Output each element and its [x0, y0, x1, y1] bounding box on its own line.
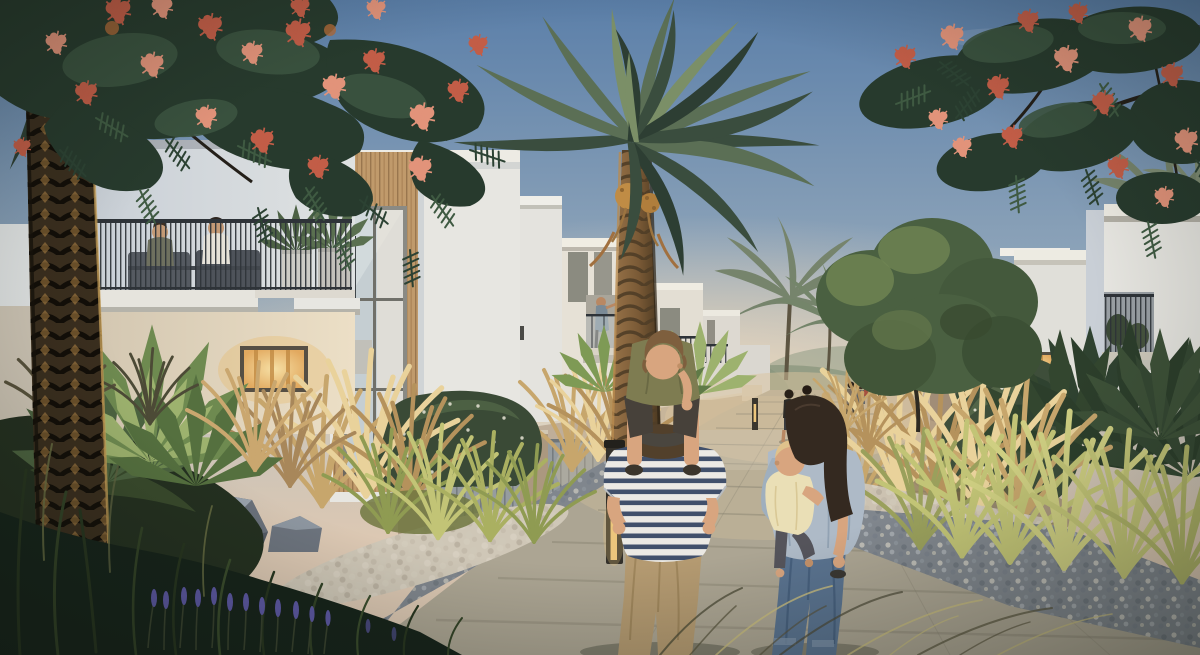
scene-svg: Dusk architectural rendering of a modern…: [0, 0, 1200, 655]
render-canvas: Dusk architectural rendering of a modern…: [0, 0, 1200, 655]
vignette: [0, 0, 1200, 655]
